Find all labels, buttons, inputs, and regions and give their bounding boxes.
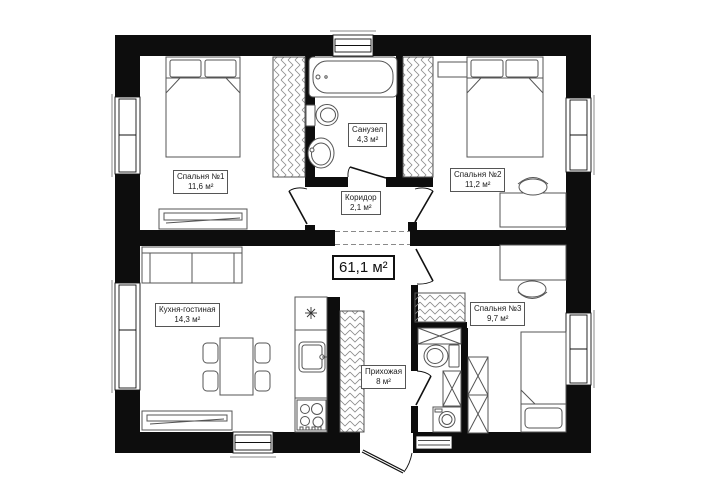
- label-corridor: Коридор 2,1 м²: [341, 191, 381, 215]
- desk-3: [500, 245, 566, 280]
- chair-3: [518, 281, 547, 299]
- room-area: 2,1 м²: [345, 203, 377, 213]
- floor-plan-drawing: [0, 0, 710, 502]
- room-area: 8 м²: [365, 377, 402, 387]
- open-passage: [335, 232, 410, 245]
- total-area-label: 61,1 м²: [332, 255, 395, 280]
- dining-table: [203, 338, 270, 395]
- single-bed-3: [521, 332, 566, 432]
- room-area: 4,3 м²: [352, 135, 383, 145]
- room-area: 14,3 м²: [159, 315, 216, 325]
- desk-2: [500, 193, 566, 227]
- window-kitchen-bottom: [233, 432, 273, 453]
- label-bedroom2: Спальня №2 11,2 м²: [450, 168, 505, 192]
- window-bedroom3: [566, 313, 591, 385]
- double-bed-1: [166, 57, 240, 157]
- wc-fixtures: [418, 328, 461, 432]
- stove: [297, 400, 326, 430]
- bedroom1-furniture: [159, 57, 305, 229]
- window-kitchen-left: [115, 283, 140, 390]
- kitchen-sink: [299, 342, 327, 372]
- cabinet: [443, 371, 461, 406]
- wardrobe-bedroom3: [415, 293, 465, 322]
- window-bedroom2: [566, 98, 591, 172]
- label-bedroom3: Спальня №3 9,7 м²: [470, 302, 525, 326]
- label-hallway: Прихожая 8 м²: [361, 365, 406, 389]
- sink-bathroom: [308, 138, 334, 168]
- sofa: [142, 247, 242, 283]
- tv-stand: [142, 411, 232, 430]
- room-name: Санузел: [352, 125, 383, 135]
- floor-plan: Спальня №1 11,6 м² Санузел 4,3 м² Спальн…: [0, 0, 710, 502]
- room-name: Спальня №1: [177, 172, 224, 182]
- entrance-threshold: [416, 436, 452, 449]
- room-name: Спальня №3: [474, 304, 521, 314]
- door-bedroom1: [289, 188, 307, 224]
- door-entrance: [362, 450, 412, 473]
- room-name: Коридор: [345, 193, 377, 203]
- toilet-1: [306, 105, 338, 127]
- bedroom3-furniture: [468, 245, 566, 433]
- door-bathroom: [348, 167, 386, 178]
- toilet-2: [424, 345, 459, 367]
- tall-cabinet: [468, 357, 488, 433]
- label-bathroom: Санузел 4,3 м²: [348, 123, 387, 147]
- door-wc: [416, 371, 431, 405]
- washing-machine: [433, 407, 461, 432]
- bedroom2-furniture: [438, 57, 566, 227]
- nightstand-2: [438, 62, 467, 77]
- window-bathroom-top: [333, 35, 373, 56]
- label-kitchen-living: Кухня-гостиная 14,3 м²: [155, 303, 220, 327]
- room-name: Прихожая: [365, 367, 402, 377]
- room-area: 9,7 м²: [474, 314, 521, 324]
- wardrobe-bedroom2: [403, 57, 433, 177]
- door-bedroom3: [416, 249, 433, 284]
- dresser-tv-1: [159, 209, 247, 229]
- shelf-unit: [418, 328, 461, 344]
- label-bedroom1: Спальня №1 11,6 м²: [173, 170, 228, 194]
- door-bedroom2: [415, 188, 433, 222]
- room-area: 11,2 м²: [454, 180, 501, 190]
- room-name: Спальня №2: [454, 170, 501, 180]
- bathroom-fixtures: [306, 57, 397, 168]
- room-area: 11,6 м²: [177, 182, 224, 192]
- window-bedroom1: [115, 97, 140, 174]
- kitchen-counter: [295, 297, 327, 432]
- double-bed-2: [467, 57, 543, 157]
- bathtub: [309, 57, 397, 97]
- room-name: Кухня-гостиная: [159, 305, 216, 315]
- chair-2: [518, 178, 548, 196]
- wardrobe-bedroom1: [273, 57, 305, 177]
- kitchen-living-furniture: [142, 247, 327, 432]
